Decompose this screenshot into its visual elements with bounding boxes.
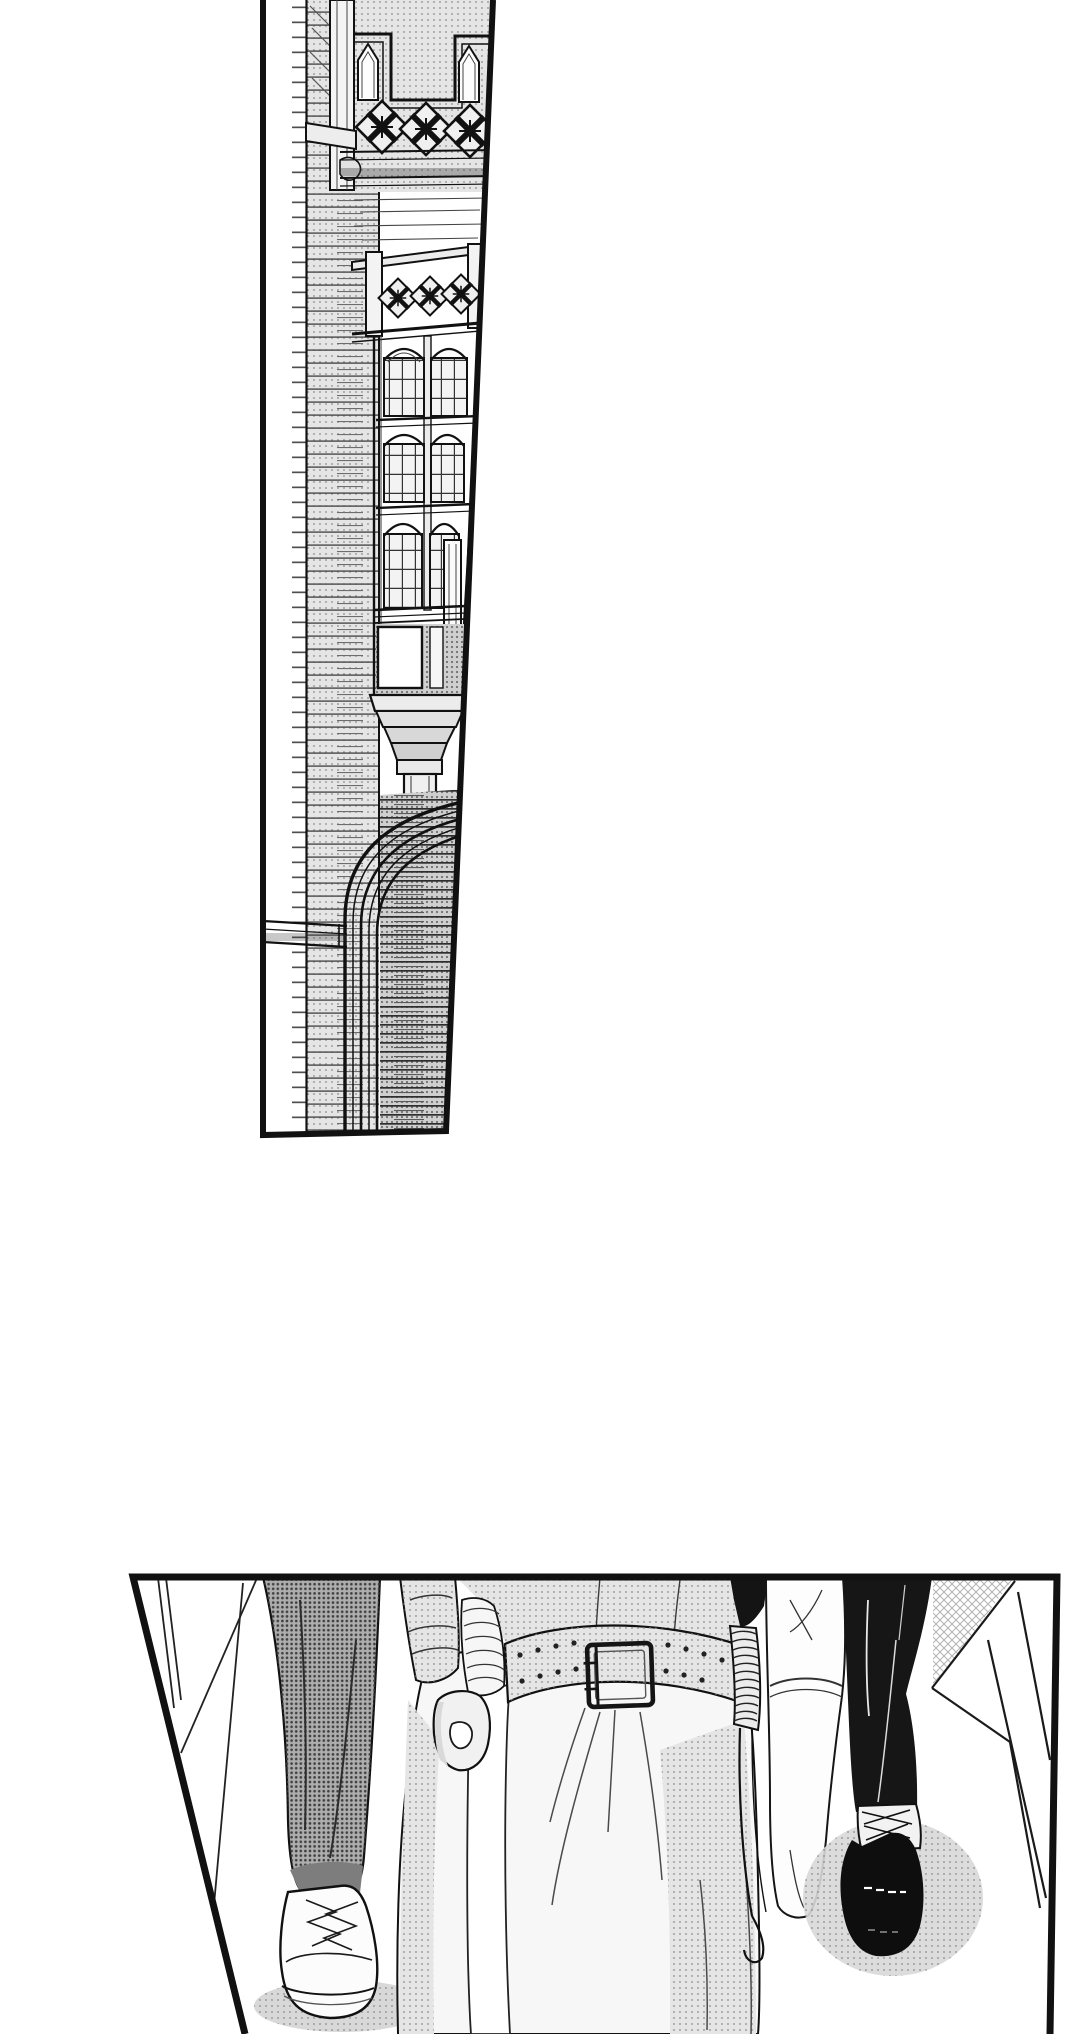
panel-walking-feet-content <box>130 1575 1060 2034</box>
panel-building-content <box>263 0 496 1140</box>
white-sneaker <box>280 1886 377 2018</box>
black-derby-shoe <box>840 1833 923 1956</box>
thumb-curl <box>450 1722 472 1748</box>
artwork <box>0 0 1080 2034</box>
blank-pane <box>378 627 422 688</box>
panel-building <box>263 0 496 1140</box>
manga-page <box>0 0 1080 2034</box>
panel-walking-feet <box>130 1575 1060 2034</box>
window-tier <box>384 435 464 502</box>
lower-panel <box>376 624 464 695</box>
oriel-crown-balustrade <box>352 244 492 342</box>
